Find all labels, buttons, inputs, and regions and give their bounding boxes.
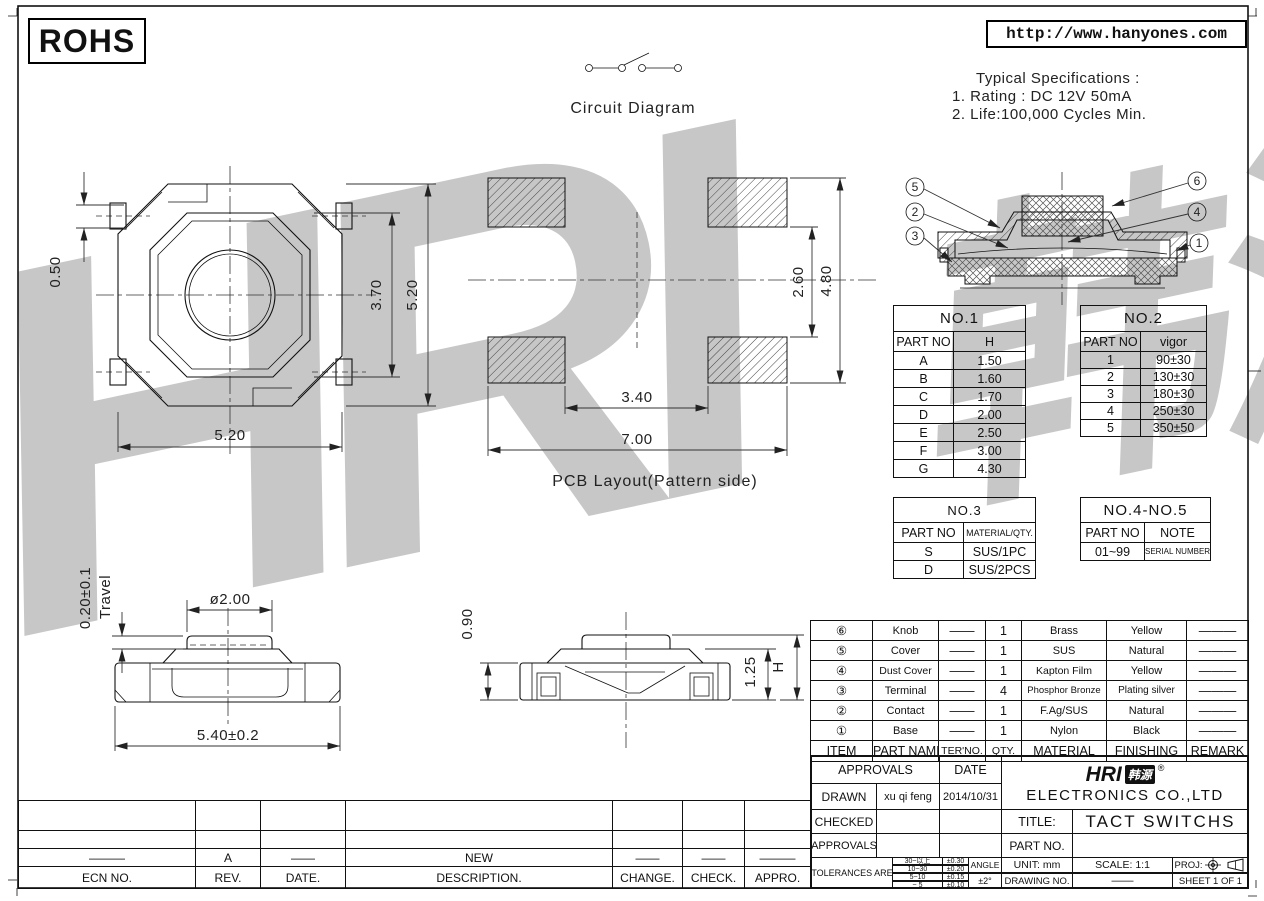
col-header: MATERIAL/QTY. [964,523,1036,543]
bom-item: ⑥ [811,621,873,641]
dim-pcb-outer-h: 7.00 [621,431,652,448]
tol-value: ±0.30 [942,857,969,865]
rohs-label: ROHS [39,23,135,60]
dim-total-height: H [770,661,787,672]
table-no1: NO.1 PART NO H A1.50 B1.60 C1.70 D2.00 E… [893,305,1026,478]
projection-cell: PROJ: [1172,857,1249,873]
pcb-layout: 2.60 4.80 3.40 7.00 PCB Layout(Pattern s… [468,178,880,490]
approvals-header: APPROVALS [811,756,940,784]
revision-empty-row [19,801,811,831]
callout-4: 4 [1194,205,1201,219]
section-base [948,258,1177,284]
table-row: 01~99 [1081,543,1145,561]
angle-label: ANGLE [968,857,1002,873]
table-row: G [894,460,954,478]
bom-item: ② [811,701,873,721]
company-logo: HRI 韩源 ® [1086,763,1165,787]
callout-6: 6 [1194,174,1201,188]
table-row: E [894,424,954,442]
company-logo-cell: HRI 韩源 ® ELECTRONICS CO.,LTD [1001,756,1249,810]
callout-2: 2 [912,205,919,219]
tol-range: 10~30 [892,865,943,873]
tol-value: ±0.10 [942,881,969,889]
drawing-sheet: HRI 韩源 Circuit Diagram [0,0,1264,901]
table-row: C [894,388,954,406]
drawn-label: DRAWN [811,783,877,810]
dim-base-height: 0.90 [459,608,476,639]
bom-row: ① Base —— 1 Nylon Black ——— [811,721,1249,741]
table-no45-title: NO.4-NO.5 [1081,498,1211,523]
table-row: 4 [1081,403,1141,420]
col-header: vigor [1141,332,1207,352]
third-angle-projection-icon [1204,858,1246,872]
specs-line-rating: 1. Rating : DC 12V 50mA [952,88,1202,106]
circuit-diagram: Circuit Diagram [570,53,695,117]
table-row: B [894,370,954,388]
rohs-badge: ROHS [28,18,146,64]
title-label: TITLE: [1001,809,1073,834]
dim-topview-width: 5.20 [214,427,245,444]
dim-body-width: 5.40±0.2 [197,727,259,744]
table-row: 2 [1081,369,1141,386]
drawn-date: 2014/10/31 [939,783,1002,810]
dim-pcb-gap-v: 2.60 [790,266,807,297]
callout-3: 3 [912,229,919,243]
approved-name [876,833,940,858]
top-view: 0.50 3.70 5.20 5.20 [47,166,436,458]
col-header: PART NO [894,332,954,352]
specs-title: Typical Specifications : [952,70,1202,88]
table-row: 3 [1081,386,1141,403]
dim-topview-inner: 3.70 [368,279,385,310]
unit-cell: UNIT: mm [1001,857,1073,873]
drawing-no-value: —— [1072,873,1173,889]
side-view-right: 0.90 1.25 H [459,608,804,748]
specs-line-life: 2. Life:100,000 Cycles Min. [952,106,1202,124]
table-row: D [894,406,954,424]
table-row: F [894,442,954,460]
approved-date [939,833,1002,858]
dim-knob-dia: ø2.00 [210,591,251,608]
dim-travel: 0.20±0.1 [77,567,94,629]
website-url: http://www.hanyones.com [1006,25,1227,43]
table-no4-no5: NO.4-NO.5 PART NO NOTE 01~99 SERIAL NUMB… [1080,497,1211,561]
table-no1-title: NO.1 [894,306,1026,332]
website-url-box: http://www.hanyones.com [986,20,1247,48]
bom-item: ④ [811,661,873,681]
bom-row: ② Contact —— 1 F.Ag/SUS Natural ——— [811,701,1249,721]
table-no3-title: NO.3 [894,498,1036,523]
dim-cover-height: 1.25 [742,656,759,687]
checked-name [876,809,940,834]
logo-cn-text: 韩源 [1125,765,1155,784]
sheet-cell: SHEET 1 OF 1 [1172,873,1249,889]
table-row: S [894,543,964,561]
company-name: ELECTRONICS CO.,LTD [1026,787,1223,804]
col-header: PART NO [1081,523,1145,543]
side-view-front: ø2.00 0.20±0.1 Travel 5.40±0.2 [77,567,340,751]
bom-row: ⑥ Knob —— 1 Brass Yellow ——— [811,621,1249,641]
table-no2-title: NO.2 [1081,306,1207,332]
travel-label: Travel [97,575,114,619]
bom-row: ③ Terminal —— 4 Phosphor Bronze Plating … [811,681,1249,701]
revision-table: ——— A —— NEW —— —— ——— ECN NO. REV. DATE… [18,800,811,889]
revision-data-row: ——— A —— NEW —— —— ——— [19,849,811,867]
callout-1: 1 [1196,236,1203,250]
bom-item: ① [811,721,873,741]
table-row: 1 [1081,352,1141,369]
tol-value: ±0.15 [942,873,969,881]
drawing-no-label: DRAWING NO. [1001,873,1073,889]
dim-pcb-gap-h: 3.40 [621,389,652,406]
typical-specifications: Typical Specifications : 1. Rating : DC … [952,70,1202,124]
tol-value: ±0.20 [942,865,969,873]
section-view: 5 2 3 6 4 1 [906,172,1208,305]
col-header: H [954,332,1026,352]
tol-range: 30~以上 [892,857,943,865]
table-row: A [894,352,954,370]
bom-row: ④ Dust Cover —— 1 Kapton Film Yellow ——— [811,661,1249,681]
drawing-title: TACT SWITCHS [1072,809,1249,834]
scale-cell: SCALE: 1:1 [1072,857,1173,873]
pcb-layout-label: PCB Layout(Pattern side) [552,473,757,490]
revision-header-row: ECN NO. REV. DATE. DESCRIPTION. CHANGE. … [19,867,811,889]
table-row: D [894,561,964,579]
drawn-name: xu qi feng [876,783,940,810]
dim-pcb-outer-v: 4.80 [818,265,835,296]
table-no3: NO.3 PART NO MATERIAL/QTY. SSUS/1PC DSUS… [893,497,1036,579]
col-header: PART NO [1081,332,1141,352]
tol-range: ~ 5 [892,881,943,889]
bom-table: ⑥ Knob —— 1 Brass Yellow ——— ⑤ Cover —— … [810,620,1249,762]
logo-hri-text: HRI [1086,763,1122,787]
date-header: DATE [939,756,1002,784]
part-no-value [1072,833,1249,858]
callout-5: 5 [912,180,919,194]
checked-label: CHECKED [811,809,877,834]
bom-item: ⑤ [811,641,873,661]
checked-date [939,809,1002,834]
registered-mark: ® [1158,763,1165,773]
revision-empty-row [19,831,811,849]
col-header: PART NO [894,523,964,543]
proj-label: PROJ: [1175,860,1203,871]
tolerances-label: TOLERANCES ARE [811,857,893,889]
col-header: NOTE [1145,523,1211,543]
bom-item: ③ [811,681,873,701]
table-row: 5 [1081,420,1141,437]
dim-topview-height: 5.20 [404,279,421,310]
part-no-label: PART NO. [1001,833,1073,858]
bom-row: ⑤ Cover —— 1 SUS Natural ——— [811,641,1249,661]
title-block: APPROVALS DATE HRI 韩源 ® ELECTRONICS CO.,… [810,755,1248,888]
circuit-diagram-label: Circuit Diagram [570,100,695,117]
dim-topview-tab: 0.50 [47,256,64,287]
tol-range: 5~10 [892,873,943,881]
table-no2: NO.2 PART NO vigor 190±30 2130±30 3180±3… [1080,305,1207,437]
angle-value: ±2° [968,873,1002,889]
approved-label: APPROVALS [811,833,877,858]
